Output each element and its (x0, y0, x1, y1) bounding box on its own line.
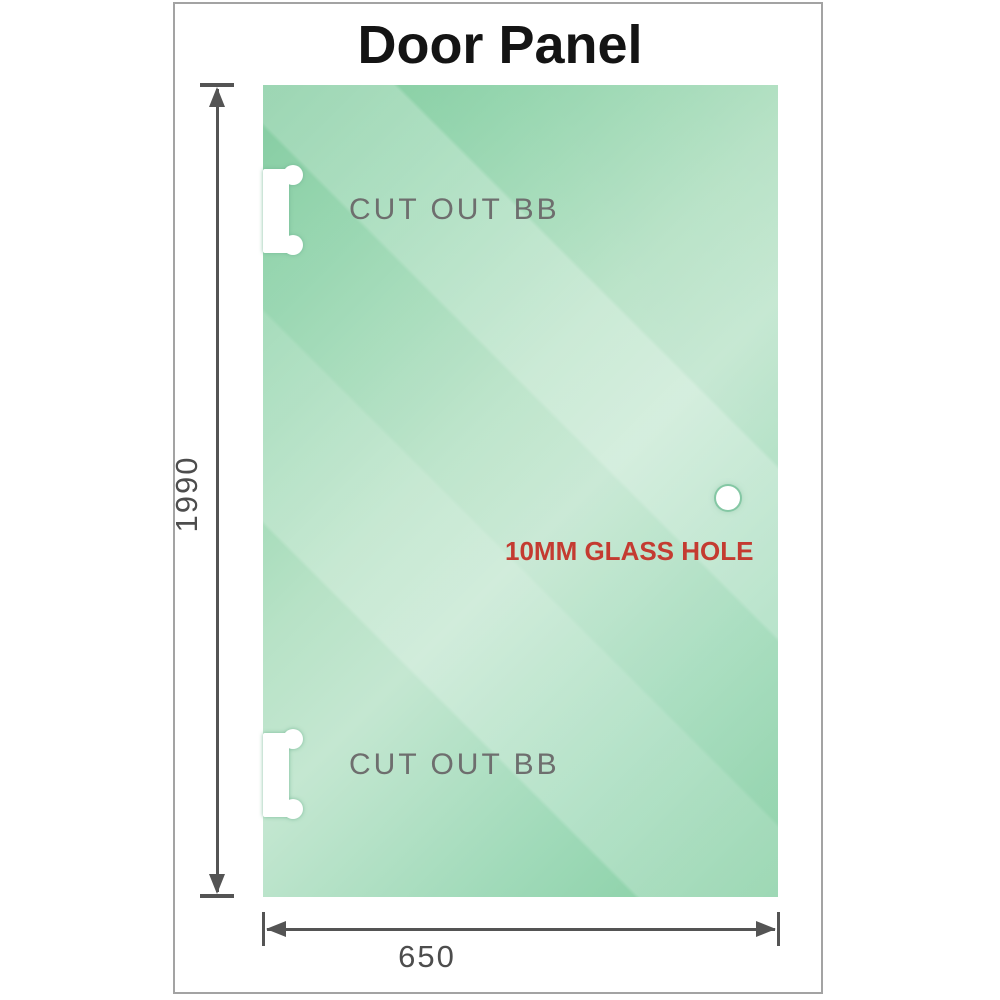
page-title: Door Panel (173, 14, 827, 76)
height-dim-bottom-tick (200, 894, 234, 898)
door-panel-diagram: Door Panel CUT OUT BB CUT OUT BB 10MM GL… (0, 0, 1000, 1000)
arrow-down-icon (209, 874, 225, 894)
arrow-right-icon (756, 921, 776, 937)
height-dim-label: 1990 (169, 456, 205, 533)
arrow-up-icon (209, 87, 225, 107)
hinge-cutout-top-icon (263, 163, 305, 257)
hinge-cutout-bottom-icon (263, 727, 305, 821)
cutout-bottom-label: CUT OUT BB (349, 748, 560, 782)
cutout-top-label: CUT OUT BB (349, 193, 560, 227)
width-dim-line (267, 928, 775, 931)
glass-hole-label: 10MM GLASS HOLE (505, 536, 715, 567)
glass-hole (716, 486, 740, 510)
arrow-left-icon (266, 921, 286, 937)
height-dim-line (216, 89, 219, 892)
width-dim-right-tick (777, 912, 780, 946)
width-dim-label: 650 (398, 939, 456, 975)
width-dim-left-tick (262, 912, 265, 946)
